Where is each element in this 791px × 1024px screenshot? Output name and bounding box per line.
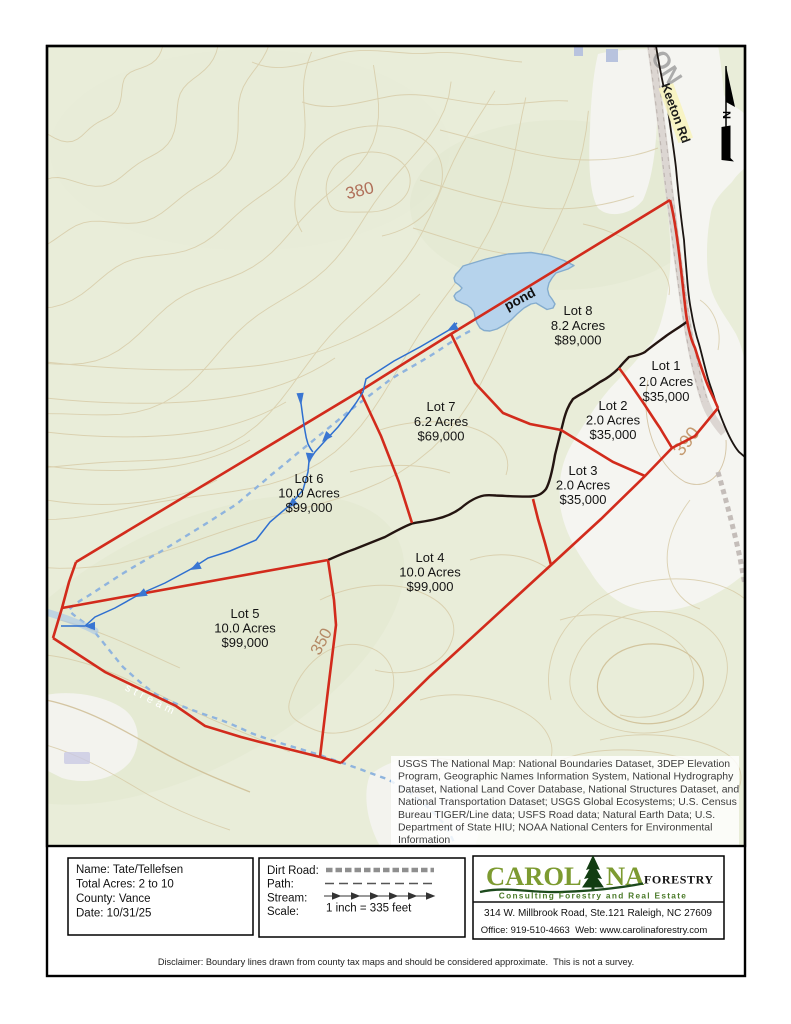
svg-text:8.2 Acres: 8.2 Acres	[551, 318, 606, 333]
svg-text:Information: Information	[398, 835, 450, 846]
svg-text:Lot 2: Lot 2	[599, 398, 628, 413]
svg-text:10.0 Acres: 10.0 Acres	[278, 486, 340, 501]
svg-text:$99,000: $99,000	[407, 579, 454, 594]
svg-text:Disclaimer: Boundary lines dra: Disclaimer: Boundary lines drawn from co…	[158, 957, 634, 967]
svg-text:Consulting Forestry and Real E: Consulting Forestry and Real Estate	[499, 891, 687, 901]
svg-text:USGS The National Map: Nationa: USGS The National Map: National Boundari…	[398, 759, 730, 770]
svg-text:Bureau TIGER/Line data; USFS R: Bureau TIGER/Line data; USFS Road data; …	[398, 810, 715, 821]
svg-text:Dataset, National Land Cover D: Dataset, National Land Cover Database, N…	[398, 784, 739, 795]
svg-text:Lot 8: Lot 8	[564, 303, 593, 318]
svg-text:2.0 Acres: 2.0 Acres	[556, 478, 611, 493]
svg-text:Office: 919-510-4663 Web: www: Office: 919-510-4663 Web: www.carolinafo…	[481, 925, 708, 936]
svg-text:FORESTRY: FORESTRY	[644, 873, 714, 887]
svg-text:National Transportation Datase: National Transportation Dataset; USGS Gl…	[398, 797, 737, 808]
svg-text:$99,000: $99,000	[222, 635, 269, 650]
svg-text:Path:: Path:	[267, 879, 294, 891]
svg-text:Dirt Road:: Dirt Road:	[267, 865, 319, 877]
svg-text:Scale:: Scale:	[267, 906, 299, 918]
svg-text:Lot 5: Lot 5	[231, 606, 260, 621]
svg-text:$35,000: $35,000	[560, 492, 607, 507]
svg-text:Department of State HIU; NOAA: Department of State HIU; NOAA National C…	[398, 823, 712, 834]
svg-text:N: N	[720, 111, 732, 119]
svg-text:314 W. Millbrook Road, Ste.121: 314 W. Millbrook Road, Ste.121 Raleigh, …	[484, 908, 712, 919]
svg-text:2.0 Acres: 2.0 Acres	[586, 413, 641, 428]
svg-text:Lot 4: Lot 4	[416, 550, 445, 565]
svg-text:Stream:: Stream:	[267, 892, 307, 904]
svg-text:2.0 Acres: 2.0 Acres	[639, 374, 694, 389]
svg-text:1 inch = 335 feet: 1 inch = 335 feet	[326, 903, 412, 915]
svg-text:Lot 7: Lot 7	[427, 399, 456, 414]
svg-text:$35,000: $35,000	[643, 389, 690, 404]
svg-text:Date: 10/31/25: Date: 10/31/25	[76, 908, 151, 920]
svg-text:$99,000: $99,000	[286, 500, 333, 515]
svg-text:10.0 Acres: 10.0 Acres	[214, 621, 276, 636]
svg-text:CAROL: CAROL	[486, 861, 582, 891]
svg-text:6.2 Acres: 6.2 Acres	[414, 414, 469, 429]
svg-text:Name: Tate/Tellefsen: Name: Tate/Tellefsen	[76, 864, 183, 876]
svg-text:Lot 1: Lot 1	[652, 358, 681, 373]
svg-text:$69,000: $69,000	[418, 429, 465, 444]
svg-text:Lot 3: Lot 3	[569, 463, 598, 478]
svg-text:Lot 6: Lot 6	[295, 471, 324, 486]
svg-text:$35,000: $35,000	[590, 427, 637, 442]
svg-text:County: Vance: County: Vance	[76, 893, 151, 905]
svg-text:Program, Geographic Names Info: Program, Geographic Names Information Sy…	[398, 772, 734, 783]
svg-text:10.0 Acres: 10.0 Acres	[399, 565, 461, 580]
svg-text:Total Acres: 2 to 10: Total Acres: 2 to 10	[76, 879, 174, 891]
svg-text:$89,000: $89,000	[555, 333, 602, 348]
